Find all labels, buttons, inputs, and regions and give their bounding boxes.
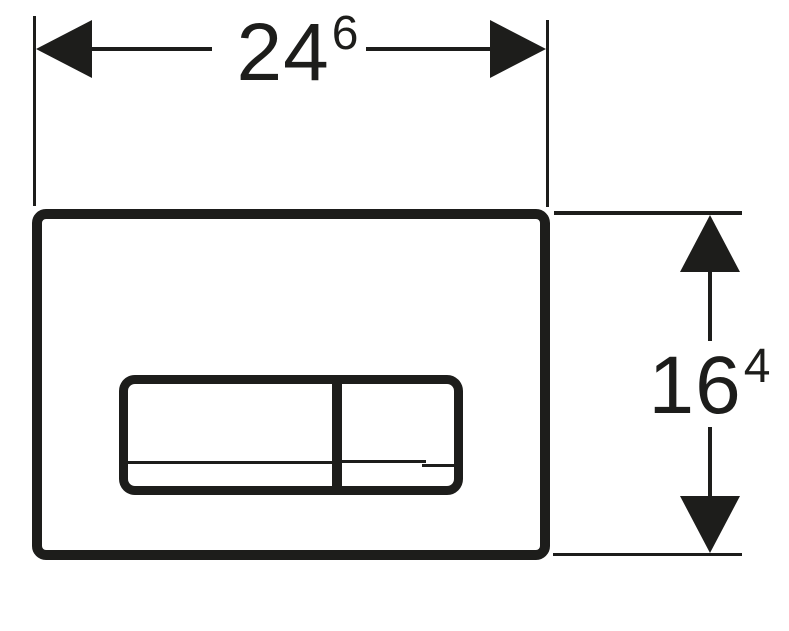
button-divider-line [332, 378, 342, 492]
width-value: 24 [237, 12, 330, 94]
width-extension-line-right [546, 20, 549, 207]
left-button-trim-line [127, 461, 336, 464]
button-panel-outline [119, 375, 463, 495]
drawing-canvas: 24 6 16 4 [0, 0, 789, 631]
width-dimension-line-left [90, 47, 212, 51]
height-dimension-label: 16 4 [628, 345, 789, 427]
right-button-trim-line [338, 460, 426, 463]
right-button-trim-line-step [422, 464, 455, 467]
height-dimension-line-upper [708, 271, 712, 341]
height-dimension-line-lower [708, 427, 712, 497]
width-arrowhead-right-icon [490, 20, 546, 78]
width-superscript: 6 [332, 10, 360, 58]
height-extension-line-bottom [553, 553, 742, 556]
width-dimension-label: 24 6 [208, 12, 388, 94]
height-arrowhead-up-icon [680, 215, 740, 272]
height-arrowhead-down-icon [680, 496, 740, 553]
height-superscript: 4 [744, 343, 772, 391]
width-arrowhead-left-icon [36, 20, 92, 78]
height-value: 16 [649, 345, 742, 427]
